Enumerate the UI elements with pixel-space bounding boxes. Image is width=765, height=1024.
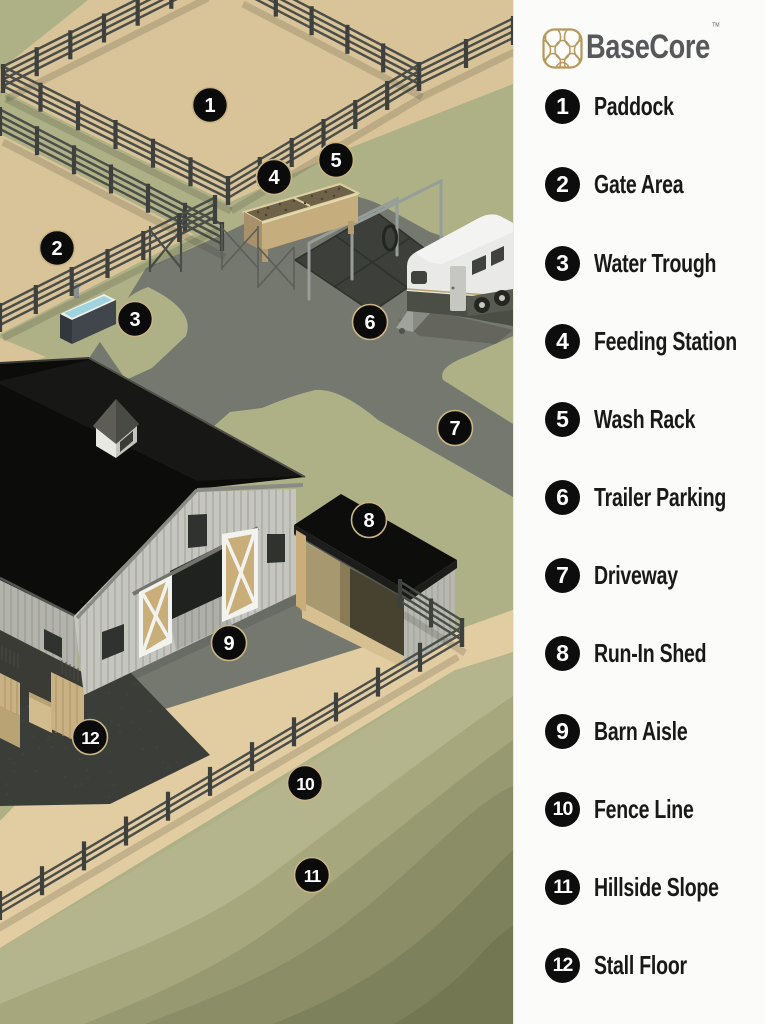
svg-text:3: 3 [129, 309, 140, 331]
svg-text:2: 2 [51, 238, 62, 260]
svg-text:7: 7 [449, 418, 460, 440]
svg-text:1: 1 [204, 95, 215, 117]
svg-text:11: 11 [304, 866, 322, 886]
svg-text:6: 6 [364, 312, 375, 334]
svg-text:8: 8 [363, 510, 374, 532]
svg-text:10: 10 [296, 774, 315, 794]
svg-text:5: 5 [330, 150, 341, 172]
svg-text:12: 12 [81, 728, 100, 748]
svg-text:4: 4 [268, 167, 280, 189]
svg-text:9: 9 [223, 633, 234, 655]
